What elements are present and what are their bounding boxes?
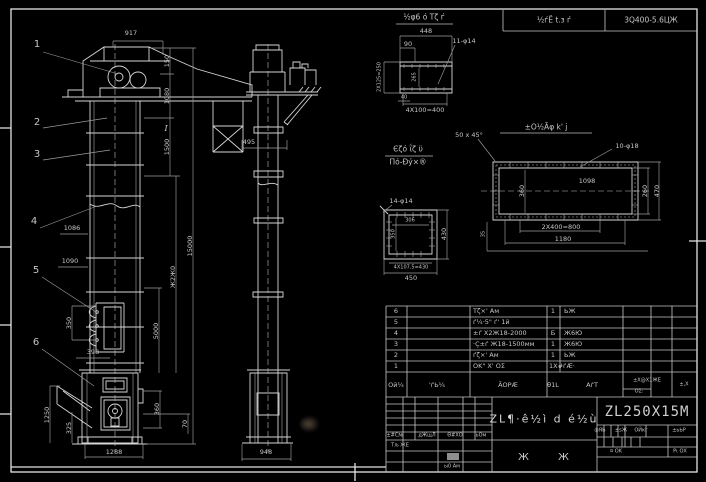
balloon-3: 3 (34, 150, 40, 160)
bom-header-code: 'ѓЬ¼ (429, 382, 445, 389)
bom-header-note: ±,Х΢ (679, 383, 688, 388)
bom-row-qty: 1 (551, 308, 555, 315)
detail-a-dim-small: 40 (401, 96, 407, 101)
detail-a-dim-top: 448 (420, 28, 432, 35)
bom-row-material: ЬЖ (564, 352, 575, 359)
dim-bucket-width: 398 (87, 349, 99, 356)
balloon-2: 2 (34, 118, 40, 128)
sheet-count-label: ¤ ΟΚ (610, 450, 622, 455)
detail-c-dim-left-small: 35 (482, 231, 487, 237)
detail-a-dim-left: 2X125=250 (378, 62, 383, 92)
dim-boot-inner: 325 (66, 422, 73, 434)
stage-cell-3: ΟЙкг (634, 429, 647, 434)
detail-a-title: ½φ6 ό Τζ ѓ (403, 13, 444, 21)
detail-b-dim-inner-h: 350 (392, 229, 397, 239)
balloon-1: 1 (34, 40, 40, 50)
rev-header-mark: ±#С№ (386, 434, 403, 439)
rev-header-count: дЖщЛ (418, 434, 435, 439)
bom-row-no: 3 (394, 341, 398, 348)
detail-c-dim-right1: 260 (642, 185, 649, 197)
dim-side-boot-depth: 948 (260, 449, 272, 456)
dim-h1080: 1080 (164, 88, 171, 105)
bom-header-name: ÃΟΡÆ (498, 382, 518, 389)
detail-c-dim-bottom2: 1180 (555, 236, 572, 243)
bom-row-material: Ж6Ю (564, 330, 582, 337)
dim-head-width: 917 (125, 30, 137, 37)
detail-c-chamfer-note: 50 x 45° (455, 132, 483, 139)
bom-row-name: ±ѓ X2Ж18-2000 (473, 330, 527, 337)
top-bar-field-1: ½ѓЁ t.з ѓ (537, 16, 571, 24)
table-grid (386, 10, 697, 472)
bom-header-no: Ой¼ (388, 382, 404, 389)
dim-h1500: 1500 (164, 139, 171, 156)
bom-row-no: 5 (394, 319, 398, 326)
front-view-geometry (57, 47, 252, 444)
dim-outlet-height: 360 (154, 403, 161, 415)
detail-b-title-line2: Πό-Đý×® (390, 158, 427, 166)
bom-row-name: ·Ç±ѓ Ж18-1500мм (473, 341, 535, 348)
detail-b-dim-inner-w: 306 (405, 219, 415, 224)
dim-outlet-offset: 70 (182, 420, 189, 428)
dim-boot-height: 1250 (44, 407, 51, 424)
signature-design: Тљ ЖЕ (391, 444, 409, 449)
detail-c-dim-bottom1: 2X400=800 (542, 224, 581, 231)
stage-cell-4: ±ьЬΡ (672, 429, 686, 434)
bom-row-qty: 1 (551, 341, 555, 348)
bom-header-qty: θ1L (547, 382, 559, 389)
dim-bucket-pitch: 350 (66, 317, 73, 329)
stage-cell-1: фЯЬ (594, 429, 605, 434)
section-mark: I (164, 125, 167, 134)
model-number: ZL250X15M (605, 405, 690, 419)
bom-row-name: Тζ×' Ам (473, 308, 499, 315)
rev-header-date: ьΟм (476, 434, 487, 439)
dim-wall-1090: 1090 (62, 258, 79, 265)
bom-row-qty: Б (551, 330, 555, 337)
dim-mid-5000: 5000 (153, 323, 160, 340)
bom-row-no: 6 (394, 308, 398, 315)
drawing-title: ZL¶·ê½ì d é½ù (489, 414, 598, 425)
drawing-linework (0, 0, 706, 482)
bom-header-weight1: ±Х@Х1ЖЕ (633, 379, 661, 384)
detail-b-dim-bottom2: 450 (405, 275, 417, 282)
detail-b-dim-right: 430 (441, 228, 448, 240)
bom-row-name: ΟΚ" Х' ΟΣ (473, 363, 505, 370)
bom-row-no: 1 (394, 363, 398, 370)
stage-cell-2: ±ѕЖ (615, 429, 627, 434)
detail-c-title: ±Ο½Ãφ k' ј (525, 123, 568, 131)
bom-header-weight2: ΟΣ: (635, 390, 644, 395)
cad-drawing-canvas: ½ѓЁ t.з ѓ 3Q400-5.6ЦЖ 1 2 3 4 5 6 I 917 … (0, 0, 706, 482)
bom-row-no: 2 (394, 352, 398, 359)
balloon-4: 4 (31, 217, 37, 227)
dim-boot-width: 1288 (106, 449, 123, 456)
detail-b-title-line1: Єζό ΐζ ϋ (393, 145, 423, 153)
dim-mid-note: Ж2Ж0 (170, 266, 177, 288)
balloon-6: 6 (33, 338, 39, 348)
bom-row-name: ѓ¼·5" ѓ' 1й (473, 319, 510, 326)
balloon-5: 5 (33, 266, 39, 276)
sheet-frame (0, 9, 706, 481)
detail-c-dim-left: 360 (519, 185, 526, 197)
screen-smudge (300, 416, 319, 432)
signature-process: ы0 Ам (444, 465, 460, 470)
sheet-number-label: Ρι ΟΧ (673, 450, 687, 455)
bom-row-no: 4 (394, 330, 398, 337)
dim-total-height: 15000 (187, 236, 194, 257)
detail-a-holes-callout: 11-φ14 (452, 38, 475, 45)
highlighted-cell (447, 453, 459, 460)
rev-header-zone: Θ#ΧΟ (447, 434, 463, 439)
bom-row-name: ѓζ×' Ам (473, 352, 499, 359)
detail-a-dim-inner: 265 (413, 72, 418, 82)
dim-side-depth: 495 (243, 139, 255, 146)
bom-row-material: Ж6Ю (564, 341, 582, 348)
dim-wall-1086: 1086 (64, 225, 81, 232)
detail-a-dim-offset: 90 (404, 41, 412, 48)
detail-a-dim-bottom: 4X100=400 (406, 107, 445, 114)
dim-h150: 150 (164, 55, 171, 67)
bom-row-material: ЬЖ (564, 308, 575, 315)
top-bar-field-2: 3Q400-5.6ЦЖ (624, 16, 678, 24)
centerlines (115, 44, 652, 452)
detail-b-dim-bottom1: 4X107.5=430 (394, 266, 429, 271)
detail-b-holes-callout: 14-φ14 (389, 198, 412, 205)
bom-header-material: АѓТ (586, 382, 598, 389)
side-view-geometry (242, 45, 321, 443)
title-underlines (385, 24, 592, 156)
sheet-type-label: Ж Ж (518, 453, 582, 463)
detail-c-dim-inner: 1098 (579, 178, 596, 185)
bom-row-qty: 1 (551, 352, 555, 359)
bom-row-qty: 1Х#ѓÆ· (549, 363, 575, 370)
detail-c-dim-right2: 470 (654, 185, 661, 197)
detail-c-holes-callout: 10-φ18 (615, 143, 638, 150)
